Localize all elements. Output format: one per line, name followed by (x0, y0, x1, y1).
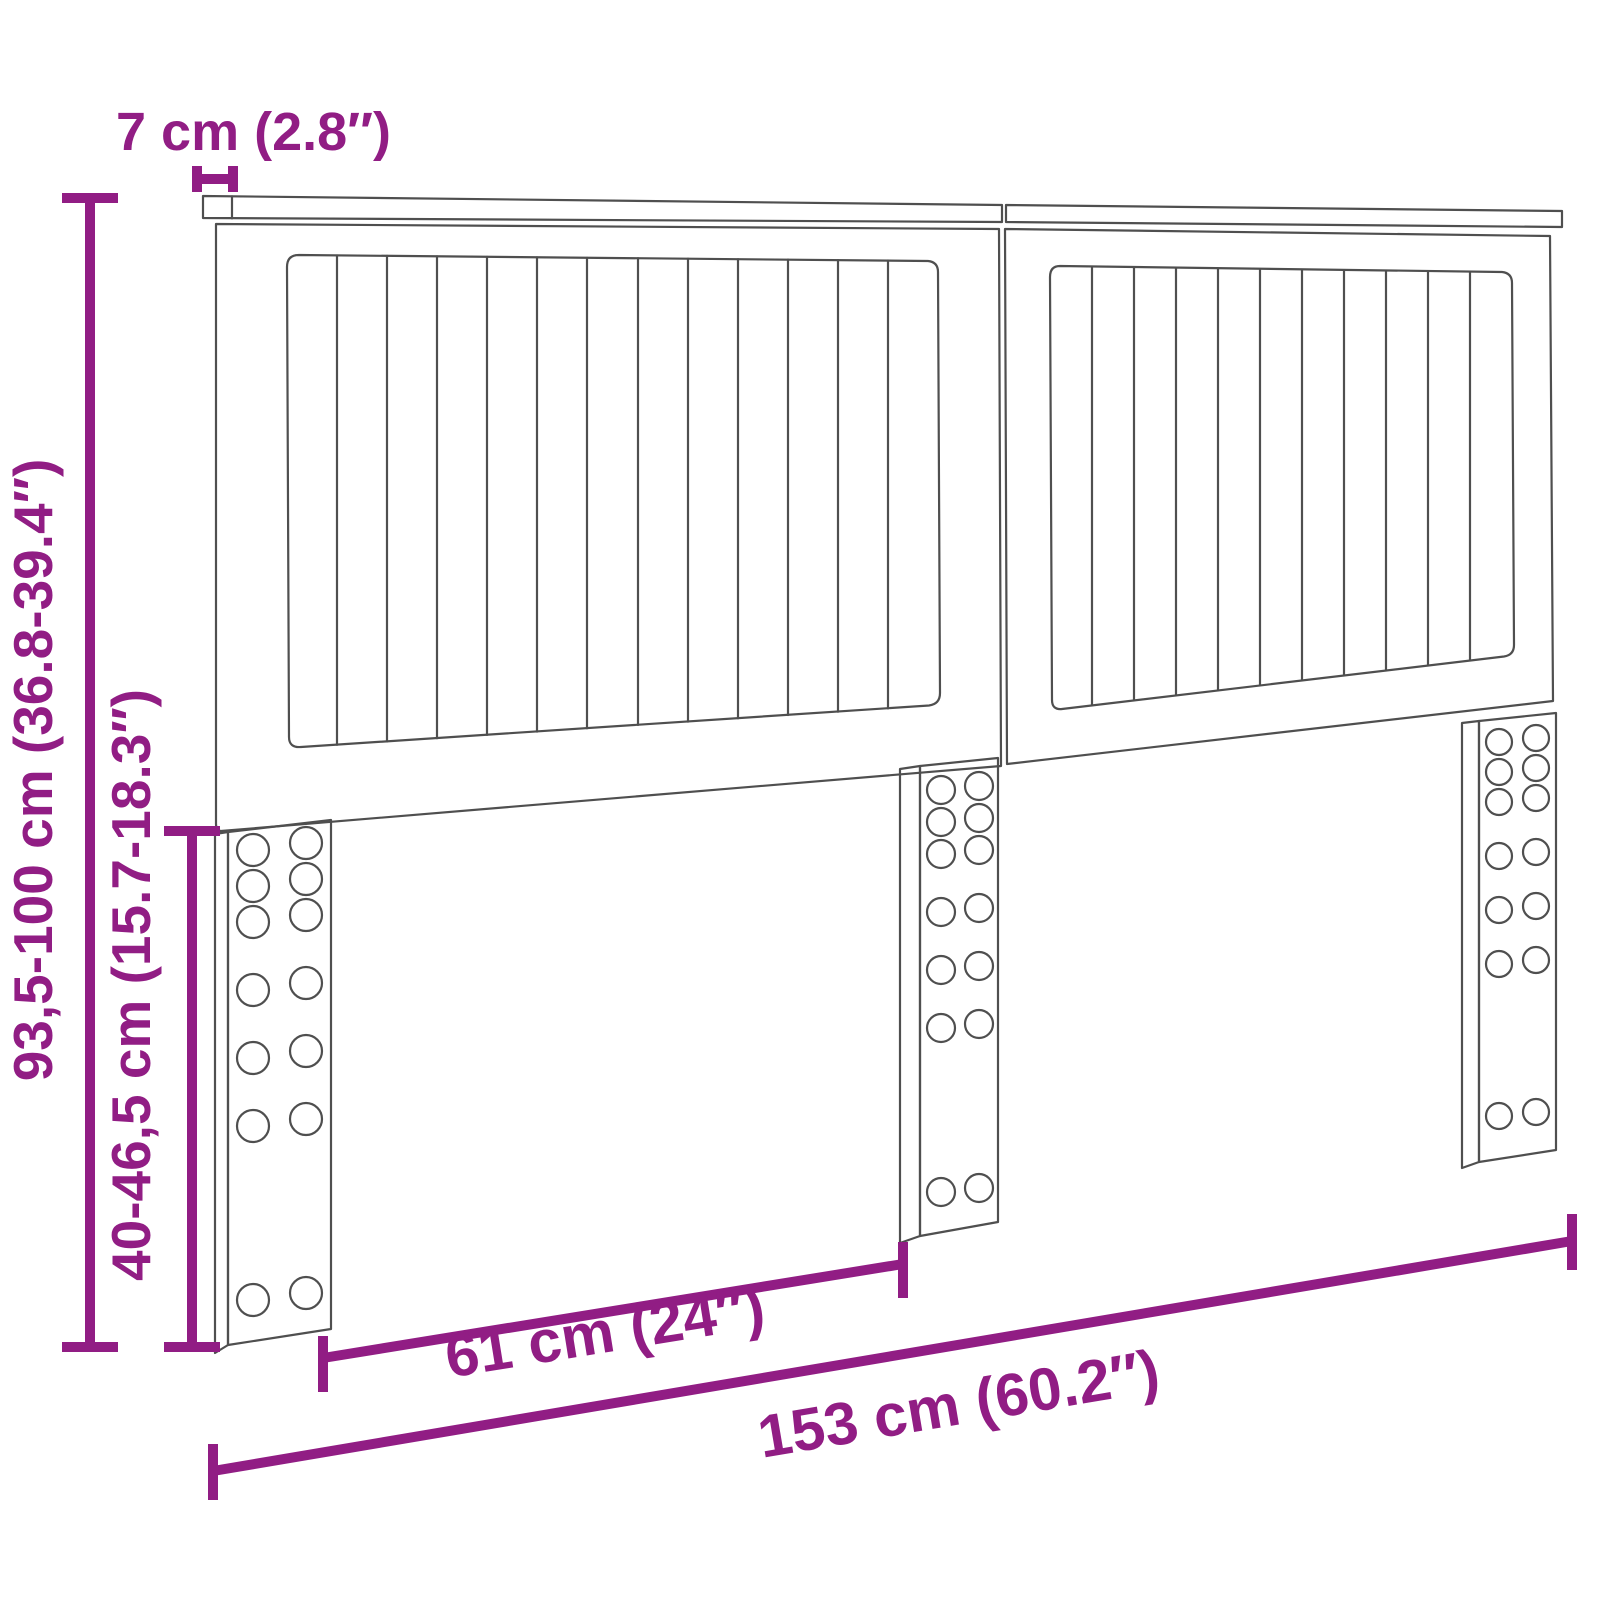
headboard-drawing (203, 196, 1562, 1353)
top-rail-depth-label: 7 cm (2.8″) (116, 102, 391, 162)
dimension-top-rail-depth: 7 cm (2.8″) (116, 102, 391, 192)
left-panel-frame (216, 224, 1001, 831)
left-inner-panel (287, 255, 940, 747)
right-inner-panel (1050, 266, 1514, 709)
dimension-leg-height: 40-46,5 cm (15.7-18.3″) (100, 689, 220, 1347)
middle-leg (900, 758, 998, 1243)
total-height-label: 93,5-100 cm (36.8-39.4″) (2, 459, 64, 1082)
middle-leg-holes (927, 772, 993, 1206)
headboard-dimension-diagram: 7 cm (2.8″) 93,5-100 cm (36.8-39.4″) 40-… (0, 0, 1600, 1600)
left-leg-holes (237, 827, 322, 1316)
right-panel-slats (1092, 268, 1470, 706)
total-width-label: 153 cm (60.2″) (753, 1337, 1164, 1471)
left-panel-slats (337, 256, 888, 745)
leg-height-label: 40-46,5 cm (15.7-18.3″) (100, 689, 162, 1281)
top-rail-left (203, 196, 1002, 222)
top-rail-right (1006, 205, 1562, 227)
right-leg-holes (1486, 725, 1549, 1129)
dimension-total-width: 153 cm (60.2″) (213, 1214, 1572, 1500)
right-leg (1462, 713, 1556, 1168)
leg-spacing-label: 61 cm (24″) (440, 1273, 769, 1391)
left-leg (215, 820, 331, 1353)
